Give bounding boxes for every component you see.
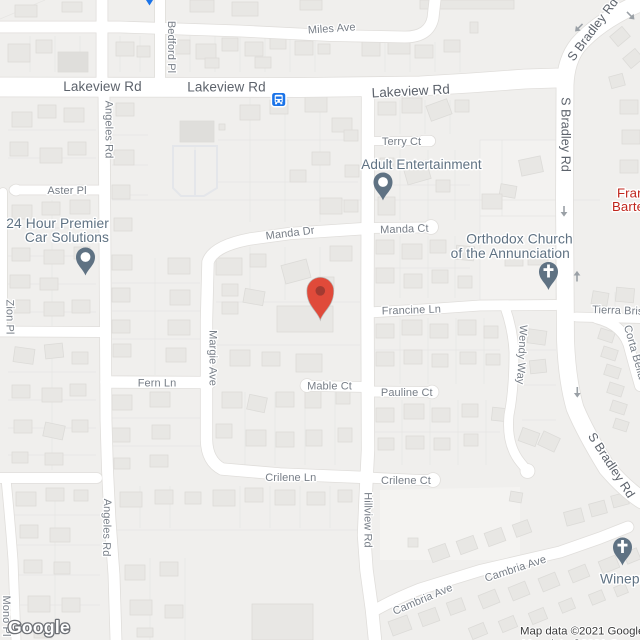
svg-text:Adult Entertainment: Adult Entertainment (361, 157, 482, 172)
svg-text:of the Annunciation: of the Annunciation (451, 246, 570, 261)
svg-text:Google: Google (8, 617, 70, 637)
svg-text:Margie Ave: Margie Ave (207, 330, 219, 386)
svg-text:Angeles Rd: Angeles Rd (103, 101, 115, 159)
svg-text:Map data ©2021 Google: Map data ©2021 Google (520, 626, 640, 638)
svg-text:Hillview Rd: Hillview Rd (362, 492, 374, 548)
svg-text:Pauline Ct: Pauline Ct (381, 387, 433, 399)
svg-text:Mable Ct: Mable Ct (307, 381, 352, 393)
svg-text:Lakeview Rd: Lakeview Rd (63, 79, 141, 94)
svg-text:Crilene Ln: Crilene Ln (265, 472, 316, 484)
svg-text:Bedford Pl: Bedford Pl (165, 21, 177, 73)
svg-text:Francine Ln: Francine Ln (382, 303, 442, 317)
svg-text:S Bradley Rd: S Bradley Rd (559, 97, 573, 172)
svg-text:Terry Ct: Terry Ct (382, 136, 421, 148)
svg-text:Barte: Barte (612, 199, 640, 214)
svg-text:Tierra Bris: Tierra Bris (592, 304, 640, 318)
svg-text:Aster Pl: Aster Pl (47, 185, 86, 197)
svg-text:Lakeview Rd: Lakeview Rd (187, 80, 265, 95)
svg-text:Crilene Ct: Crilene Ct (381, 475, 431, 487)
svg-text:Zion Pl: Zion Pl (4, 300, 16, 335)
svg-text:Manda Ct: Manda Ct (380, 223, 429, 237)
svg-text:Angeles Rd: Angeles Rd (100, 499, 113, 557)
svg-text:24 Hour Premier: 24 Hour Premier (6, 216, 109, 231)
svg-text:Orthodox Church: Orthodox Church (466, 232, 573, 247)
svg-text:Winepress: Winepress (600, 572, 640, 587)
svg-text:Car Solutions: Car Solutions (25, 230, 109, 245)
svg-text:Fern Ln: Fern Ln (138, 378, 177, 390)
